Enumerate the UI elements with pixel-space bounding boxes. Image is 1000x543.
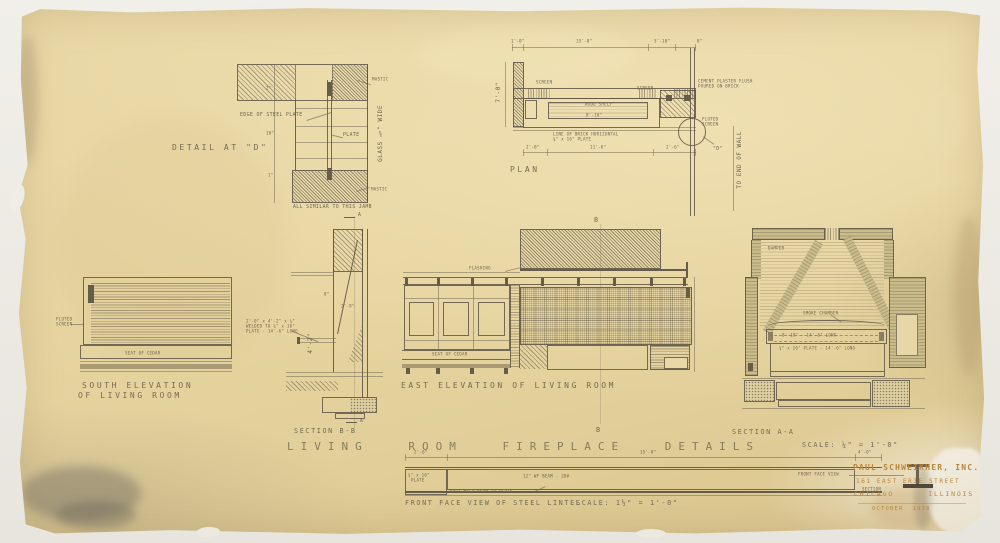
foundation-step	[778, 400, 871, 407]
flashing-label: FLASHING	[469, 266, 491, 271]
brick-mass	[520, 287, 692, 345]
dim-tick	[512, 44, 513, 51]
flashing-line	[520, 269, 688, 271]
wood-shelf-label: WOOD SHELF	[585, 102, 612, 107]
aa-wing-left	[745, 277, 758, 376]
vertical-band	[510, 285, 520, 368]
foundation-base-line	[742, 408, 925, 409]
plan-left-void	[525, 100, 537, 119]
floor-line	[286, 376, 383, 377]
brick-note-line2: ¾" x 16" PLATE	[553, 137, 591, 142]
jamb-note: ALL SIMILAR TO THIS JAMB	[293, 204, 372, 210]
firm-address: 161 EAST ERIE STREET	[856, 478, 960, 486]
corner-post	[686, 288, 690, 298]
hinge-block	[88, 285, 94, 303]
plate-label-line2: PLATE	[411, 478, 425, 483]
dim-tick	[547, 149, 548, 156]
bb-dim-42: 4'-2"	[307, 333, 315, 354]
ceiling-line	[291, 272, 334, 273]
plate-end-cap	[768, 332, 773, 341]
floor-line	[286, 372, 383, 373]
stain	[21, 466, 141, 521]
plan-dim-bottom-mid: 11'-6"	[590, 145, 606, 150]
dim-tick	[695, 149, 696, 156]
base-post	[470, 368, 474, 374]
plan-dim-top-mid: 15'-0"	[576, 39, 592, 44]
opening-note: 8'-10" - 14'-6" LONG	[782, 333, 837, 338]
post	[650, 278, 653, 286]
glass-stop-top	[327, 82, 332, 96]
plan-south-line	[513, 127, 696, 128]
masonry-hatch	[238, 65, 296, 100]
foundation-block-left	[744, 380, 775, 402]
lintel-dim-right: 4'-0"	[858, 450, 872, 455]
sheet-date: OCTOBER 1938	[872, 506, 931, 513]
dashed-line	[774, 341, 878, 342]
base-post	[504, 368, 508, 374]
edge-tear	[636, 529, 666, 538]
south-elev-title-line1: SOUTH ELEVATION	[82, 381, 193, 391]
detail-d-marker: "D"	[713, 146, 723, 152]
base-line	[80, 361, 232, 362]
dim-10in: 10"	[266, 131, 274, 136]
firm-city: CHICAGO ILLINOIS	[854, 490, 974, 498]
screen-label-left: SCREEN	[536, 80, 552, 85]
jamb-edge-line	[367, 64, 368, 203]
rail	[405, 298, 509, 299]
lintel-dim-mid: 15'-0"	[640, 450, 656, 455]
beam-label: 12" WF BEAM - 28#	[523, 474, 569, 479]
hearth-recess	[547, 345, 648, 370]
edge-tear	[250, 3, 268, 9]
pane	[478, 302, 505, 336]
flashing-hook	[686, 262, 688, 278]
dim-tick	[405, 454, 406, 461]
stain	[416, 24, 636, 84]
lintel-dim-left: 2'-6"	[414, 450, 428, 455]
detail-d-head-jamb	[237, 64, 368, 101]
lintel-scale: SCALE: 1½" = 1'-0"	[576, 499, 678, 508]
fluted-screen-label2: SCREEN	[702, 122, 718, 127]
seat-line	[300, 338, 336, 339]
plan-dim-bottom-left: 2'-0"	[526, 145, 540, 150]
sheet-main-title: LIVING ROOM FIREPLACE DETAILS	[287, 440, 760, 454]
mastic-label-top: MASTIC	[372, 77, 388, 82]
scanned-drawing-sheet: { "sheet": { "main_title": "LIVING ROOM …	[0, 0, 1000, 543]
seat-label: SEAT OF CEDAR	[125, 351, 160, 356]
section-marker-tick	[344, 217, 355, 218]
detail-d-title: DETAIL AT "D"	[172, 143, 268, 153]
window-screen	[404, 285, 510, 350]
section-a-marker-bottom: A	[360, 418, 363, 424]
section-a-marker-top: A	[358, 212, 361, 218]
dim-tick	[695, 44, 696, 51]
cement-note-line2: POURED ON BRICK	[698, 84, 739, 89]
stain	[921, 86, 966, 156]
bb-dim-29: 2'-9"	[341, 304, 355, 309]
weld-note: SPOT-WELD BEAM TO PLATE	[450, 489, 513, 494]
base-post	[436, 368, 440, 374]
aa-wing-right	[889, 277, 926, 368]
seat-line	[300, 342, 336, 343]
plan-dim-top-right: 5'-10"	[654, 39, 670, 44]
south-elev-title-line2: OF LIVING ROOM	[78, 391, 182, 401]
plan-south-line	[513, 130, 696, 131]
edge-tear	[196, 526, 221, 538]
glass-stop-bottom	[327, 168, 332, 180]
section-b-marker-bottom: B	[596, 426, 602, 435]
plate-label: PLATE	[343, 132, 359, 138]
firm-name: PAUL SCHWEIKHER, INC.	[853, 463, 979, 473]
dim-tick	[523, 149, 524, 156]
aa-top-band	[752, 228, 893, 240]
wood-storage	[650, 345, 690, 370]
section-marker-tick	[346, 422, 357, 423]
foundation-line	[742, 378, 925, 379]
dim-tick	[648, 44, 649, 51]
plate-note: ¾" x 16" PLATE - 14'-6" LONG	[779, 346, 855, 351]
base-line	[80, 371, 232, 372]
dim-tick	[675, 44, 676, 51]
screen-hatch	[528, 89, 550, 98]
dim-tick	[523, 44, 524, 51]
clerestory-band	[403, 277, 688, 285]
plan-dim-bottom-right: 2'-6"	[666, 145, 680, 150]
lintel-beam	[447, 469, 855, 490]
aa-lintel-arc	[768, 320, 886, 326]
pane	[443, 302, 469, 336]
base-band	[80, 364, 232, 369]
aa-hearth	[770, 371, 885, 377]
dim-tick	[653, 149, 654, 156]
sheet-scale-note: SCALE: ¼" = 1'-0"	[802, 441, 899, 450]
dim-line	[523, 152, 696, 153]
aged-paper-sheet: DETAIL AT "D" EDGE OF STEEL PLATE PLATE …	[16, 6, 986, 536]
fluted-screen-label2: SCREEN	[56, 322, 72, 327]
damper-label: DAMPER	[768, 246, 784, 251]
east-elev-title: EAST ELEVATION OF LIVING ROOM	[401, 381, 616, 391]
aa-flue-gap	[824, 228, 840, 240]
title-block-rule	[858, 503, 966, 504]
dim-tick	[881, 454, 882, 461]
dim-1in: 1"	[268, 173, 273, 178]
plate-note-line3: PLATE - 14'-6" LONG	[246, 329, 298, 334]
aa-wall-upper-right	[884, 240, 894, 279]
lintel-top-line	[405, 467, 882, 468]
wall-extent-note: TO END OF WALL	[736, 131, 744, 189]
mastic-label-bottom: MASTIC	[371, 187, 387, 192]
screen-label-right: SCREEN	[637, 86, 653, 91]
steel-angle	[297, 337, 300, 344]
edge-tear	[13, 98, 21, 113]
plan-title: PLAN	[510, 165, 540, 175]
stain	[954, 216, 984, 376]
seat-label: SEAT OF CEDAR	[432, 352, 467, 357]
bb-wall-line	[333, 229, 334, 372]
foundation-center	[776, 382, 871, 400]
anchor-block	[748, 363, 753, 371]
dim-tick	[447, 454, 448, 461]
jamb-edge-line	[295, 100, 296, 170]
storage-opening	[664, 357, 688, 369]
pier-anchor	[666, 95, 672, 101]
base-band	[402, 364, 510, 368]
footing-concrete	[350, 398, 376, 412]
shelf-dim-label: 8'-10"	[586, 113, 602, 118]
post	[683, 278, 686, 286]
plan-dim-left: 7'-0"	[495, 82, 503, 103]
edge-of-steel-plate-note: EDGE OF STEEL PLATE	[240, 112, 303, 118]
ceiling-line	[291, 275, 334, 276]
floor-slab-hatch	[286, 381, 338, 391]
bb-dim-8: 8"	[324, 292, 329, 297]
dim-tick	[855, 454, 856, 461]
lintel-title: FRONT FACE VIEW OF STEEL LINTEL	[405, 499, 581, 508]
mini-view-label: FRONT FACE VIEW	[798, 472, 839, 477]
dim-line	[505, 62, 506, 127]
leader-line	[703, 136, 714, 144]
pane	[409, 302, 434, 336]
chimney-above-roof	[520, 229, 661, 269]
wall-edge-line	[694, 277, 695, 372]
post	[613, 278, 616, 286]
section-b-marker-top: B	[594, 216, 600, 225]
section-aa-title: SECTION A-A	[732, 428, 795, 437]
leader-line	[332, 135, 343, 139]
aa-wall-upper-left	[751, 240, 761, 279]
plan-dim-top-left: 1'-0"	[511, 39, 525, 44]
stain	[56, 501, 136, 529]
south-elev-screen	[83, 277, 232, 345]
glass-width-note: GLASS ¾" WIDE	[377, 105, 385, 162]
foundation-block-right	[872, 380, 910, 407]
plate-end-cap	[879, 332, 884, 341]
roof-line	[403, 272, 520, 273]
centerline-b	[600, 224, 601, 424]
lintel-base-line	[405, 495, 882, 496]
section-bb-title: SECTION B-B	[294, 427, 357, 436]
post	[541, 278, 544, 286]
dim-line	[512, 47, 696, 48]
wing-opening	[896, 314, 918, 356]
plan-dim-top-end: 8"	[697, 39, 702, 44]
bb-wall-upper	[333, 229, 363, 272]
dim-line	[733, 126, 734, 211]
dim-line	[405, 457, 882, 458]
smoke-shelf-wedge	[348, 322, 363, 362]
post	[577, 278, 580, 286]
dim-2in: 2"	[266, 86, 271, 91]
base-post	[406, 368, 410, 374]
hearth-left-hatch	[520, 345, 547, 369]
leader-line	[71, 324, 83, 325]
louver-lines	[91, 283, 230, 343]
rail	[405, 340, 509, 341]
leader-line	[849, 475, 904, 476]
